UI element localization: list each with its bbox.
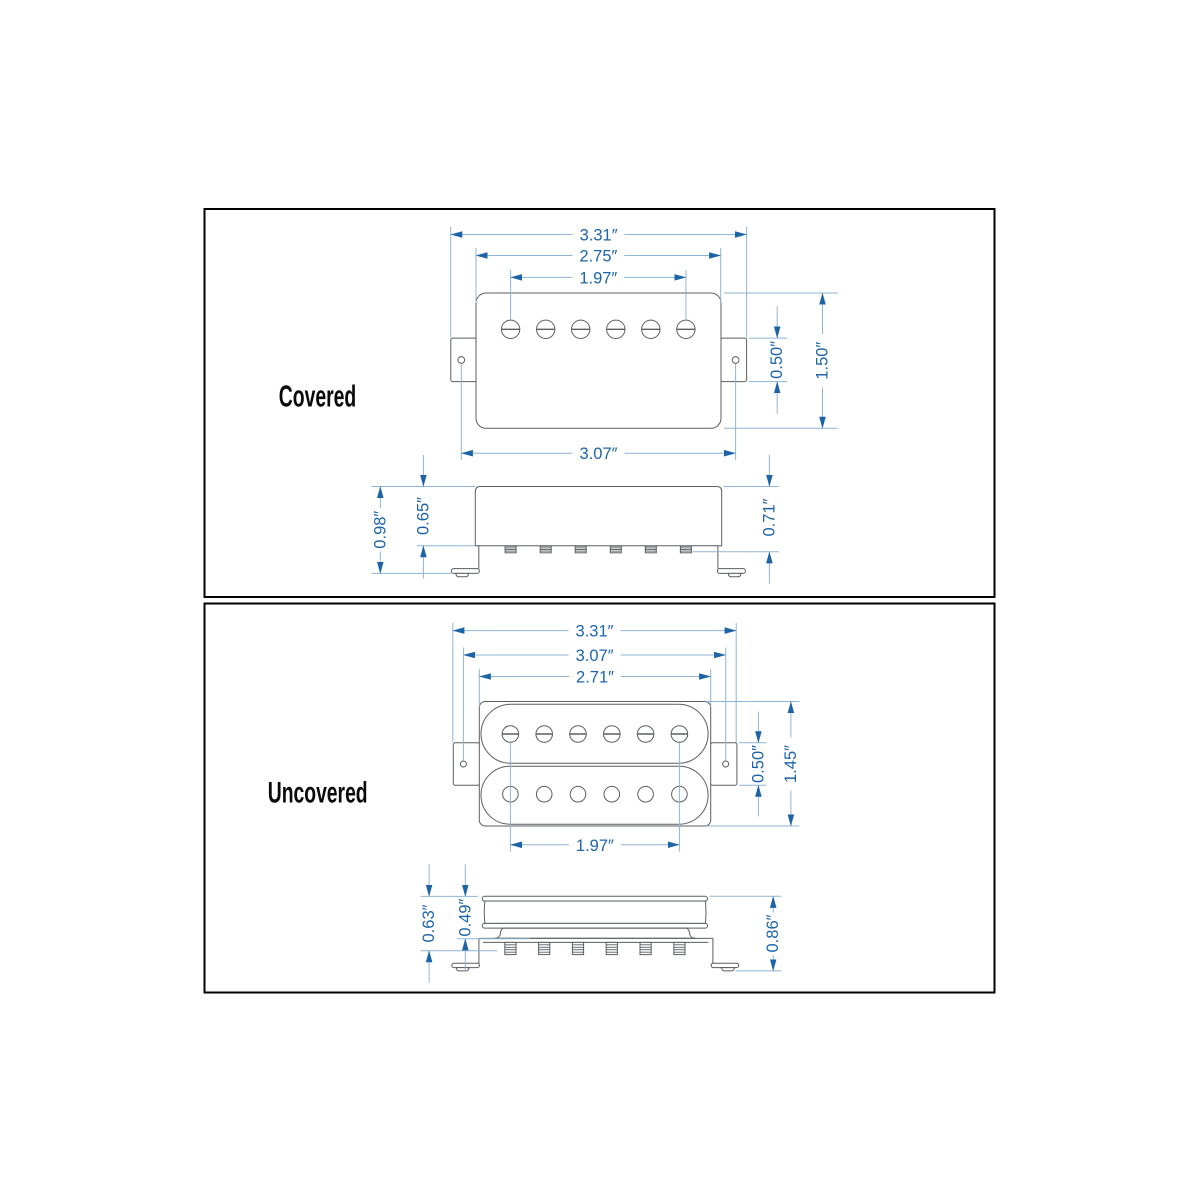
svg-text:3.07″: 3.07″ (576, 647, 614, 665)
svg-text:1.97″: 1.97″ (579, 269, 617, 287)
svg-text:0.49″: 0.49″ (456, 898, 474, 936)
svg-text:2.75″: 2.75″ (579, 248, 617, 266)
svg-text:1.50″: 1.50″ (814, 342, 832, 380)
svg-text:0.98″: 0.98″ (371, 511, 389, 549)
svg-text:3.07″: 3.07″ (580, 445, 618, 463)
svg-text:0.71″: 0.71″ (760, 498, 778, 536)
svg-text:0.50″: 0.50″ (749, 745, 767, 783)
svg-text:Covered: Covered (279, 380, 356, 414)
svg-text:0.86″: 0.86″ (764, 914, 782, 952)
svg-text:1.45″: 1.45″ (782, 745, 800, 783)
svg-text:2.71″: 2.71″ (576, 669, 614, 687)
svg-text:1.97″: 1.97″ (576, 837, 614, 855)
svg-text:0.63″: 0.63″ (420, 904, 438, 942)
svg-text:0.65″: 0.65″ (414, 497, 432, 535)
svg-text:Uncovered: Uncovered (268, 776, 368, 809)
svg-text:3.31″: 3.31″ (580, 227, 618, 245)
svg-text:3.31″: 3.31″ (576, 623, 614, 641)
svg-text:0.50″: 0.50″ (768, 341, 786, 379)
